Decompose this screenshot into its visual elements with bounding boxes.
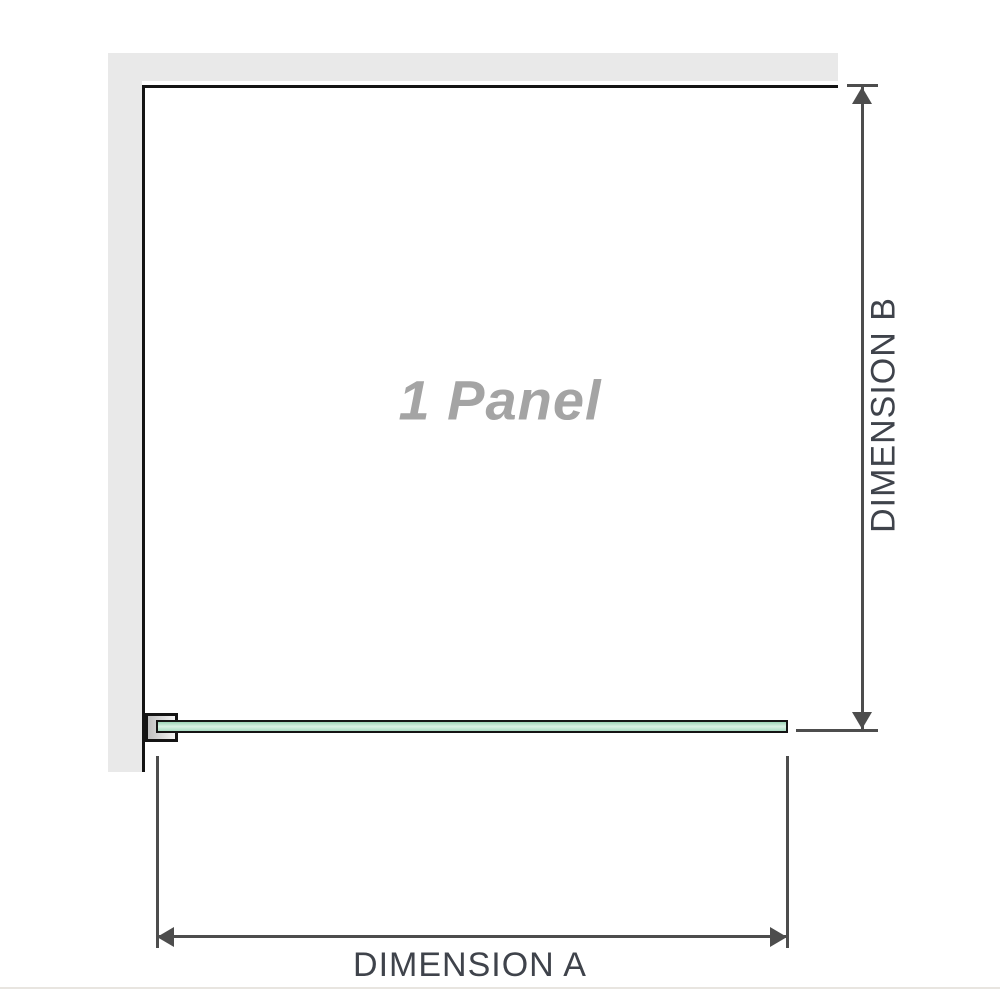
panel-frame-left-line [142,85,145,772]
wall-left-bar [108,53,142,772]
dimension-a-line [157,935,787,938]
panel-count-label: 1 Panel [398,368,601,433]
glass-panel [156,720,788,733]
arrow-up-icon [852,87,872,104]
dimension-a-right-extension-line [786,756,789,948]
dimension-diagram: 1 Panel DIMENSION B DIMENSION A [0,0,1000,1000]
panel-frame-top-line [142,85,838,88]
arrow-down-icon [852,712,872,729]
dimension-b-bottom-tick [796,729,878,732]
wall-top-bar [108,53,838,81]
arrow-right-icon [770,927,787,947]
bottom-divider-line [0,987,1000,989]
dimension-a-label: DIMENSION A [353,946,587,985]
dimension-a-left-extension-line [156,756,159,948]
dimension-b-label: DIMENSION B [865,297,904,533]
arrow-left-icon [157,927,174,947]
